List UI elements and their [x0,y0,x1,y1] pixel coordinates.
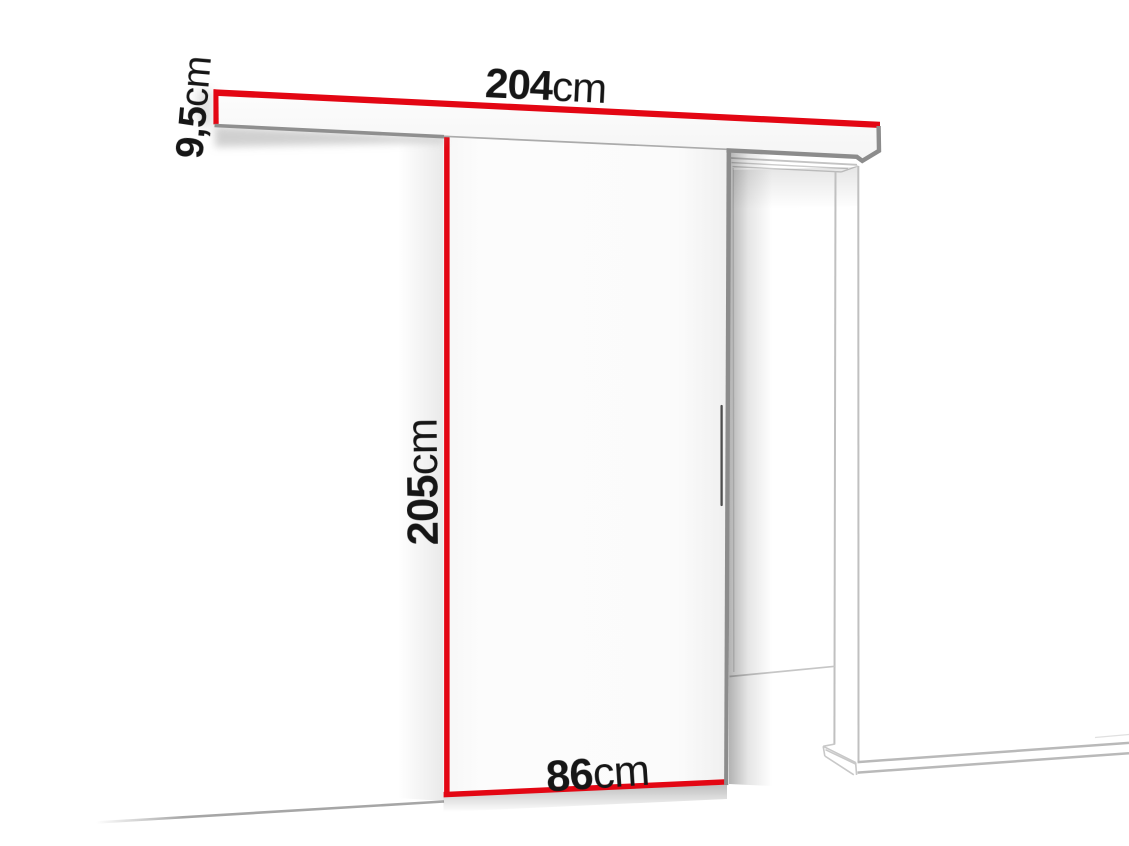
svg-text:204cm: 204cm [484,59,607,112]
svg-text:9,5cm: 9,5cm [168,55,220,161]
svg-text:86cm: 86cm [545,747,651,802]
svg-text:205cm: 205cm [399,419,448,546]
